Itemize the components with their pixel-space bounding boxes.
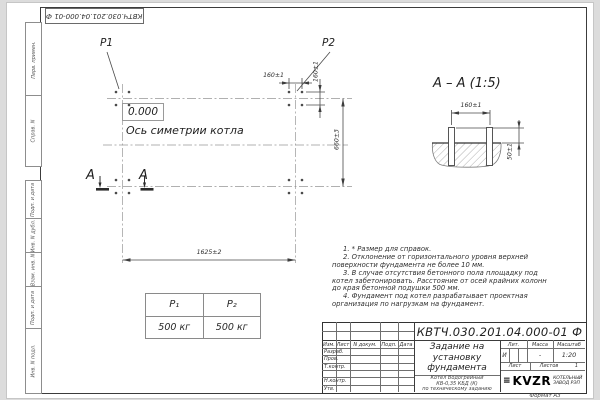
kvzr-logo: ≡ KVZR КОТЕЛЬНЫЙ ЗАВОД РЭП xyxy=(503,372,584,390)
format-label: Формат А3 xyxy=(505,393,585,399)
tb-mass-label: Масса xyxy=(527,341,553,348)
tb-mass-value: - xyxy=(527,349,553,361)
symmetry-axis-label: Ось симетрии котла xyxy=(126,124,244,137)
note-2: 2. Отклонение от горизонтального уровня … xyxy=(332,254,550,270)
load-table-header-p1: P₁ xyxy=(146,294,203,316)
tb-col-list: Лист xyxy=(336,341,350,348)
divider-line xyxy=(398,322,399,392)
elevation-mark: 0.000 xyxy=(122,103,164,121)
anchor-bolt-left xyxy=(449,128,455,166)
dim-section-protrusion: 50±1 xyxy=(507,124,514,178)
dim-bolt-spacing-v: 160±1 xyxy=(313,44,320,98)
technical-notes: 1. * Размер для справок. 2. Отклонение о… xyxy=(332,246,550,309)
document-title-line: Задание на xyxy=(430,342,485,353)
dim-bolt-spacing-h: 160±1 xyxy=(258,72,284,79)
tb-row-tkontr: Т.контр. xyxy=(322,363,352,370)
tb-col-podp: Подп. xyxy=(380,341,398,348)
tb-scale-value: 1:20 xyxy=(553,349,585,361)
product-name-line: по техническому заданию xyxy=(422,387,492,393)
document-designation: КВТЧ.030.201.04.000-01 Ф xyxy=(415,323,584,340)
tb-lit-value: И xyxy=(500,349,509,361)
tb-col-ndoc: N докум. xyxy=(350,341,380,348)
dim-row-spacing: 660±3 xyxy=(334,113,341,167)
document-title-line: фундамента xyxy=(427,363,487,374)
drawing-sheet-canvas: Перв. примен. Справ. N Подп. и дата Инв.… xyxy=(0,0,600,400)
load-point-label-p2: P2 xyxy=(322,37,335,49)
divider-line xyxy=(518,348,519,362)
product-name: Котел Водогрейный КВ-0,35 КБД (К) по тех… xyxy=(415,376,499,393)
kvzr-logo-text: KVZR xyxy=(513,374,552,388)
tb-row-utv: Утв. xyxy=(322,385,352,392)
tb-row-empty xyxy=(322,370,352,377)
note-3: 3. В случае отсутствия бетонного пола пл… xyxy=(332,270,550,294)
tb-sheets-label: Листов xyxy=(530,363,568,370)
divider-line xyxy=(509,348,510,362)
kvzr-logo-icon: ≡ xyxy=(503,376,511,386)
section-concrete-pad xyxy=(432,128,501,168)
load-table: P₁ P₂ 500 кг 500 кг xyxy=(145,293,261,339)
load-point-label-p1: P1 xyxy=(100,37,113,49)
tb-row-razrab: Разраб. xyxy=(322,349,352,356)
tb-row-nkontr: Н.контр. xyxy=(322,378,352,385)
document-title-line: установку xyxy=(433,353,482,364)
section-view-title: А – А (1:5) xyxy=(433,76,501,91)
section-letter-a1: A xyxy=(86,168,95,183)
load-table-value-row: 500 кг 500 кг xyxy=(146,316,260,339)
tb-lit-label: Лит. xyxy=(500,341,527,348)
load-table-header-row: P₁ P₂ xyxy=(146,294,260,316)
divider-line xyxy=(500,370,585,371)
dim-section-bolt-spacing: 160±1 xyxy=(445,102,497,109)
tb-col-data: Дата xyxy=(398,341,414,348)
anchor-bolt-right xyxy=(487,128,493,166)
note-4: 4. Фундамент под котел разрабатывает про… xyxy=(332,293,550,309)
kvzr-logo-caption: КОТЕЛЬНЫЙ ЗАВОД РЭП xyxy=(553,376,582,386)
tb-row-prov: Пров. xyxy=(322,356,352,363)
dim-overall-width: 1625±2 xyxy=(174,249,244,256)
load-table-header-p2: P₂ xyxy=(203,294,261,316)
kvzr-caption-line: ЗАВОД РЭП xyxy=(553,381,582,386)
load-table-value-p2: 500 кг xyxy=(203,317,261,339)
load-table-value-p1: 500 кг xyxy=(146,317,203,339)
section-letter-a2: A xyxy=(139,168,148,183)
tb-scale-label: Масштаб xyxy=(553,341,585,348)
tb-sheets-value: 1 xyxy=(568,363,585,370)
tb-col-izm: Изм. xyxy=(322,341,336,348)
document-title: Задание на установку фундамента xyxy=(415,341,499,375)
divider-line xyxy=(380,322,381,392)
tb-sheet-label: Лист xyxy=(500,363,530,370)
